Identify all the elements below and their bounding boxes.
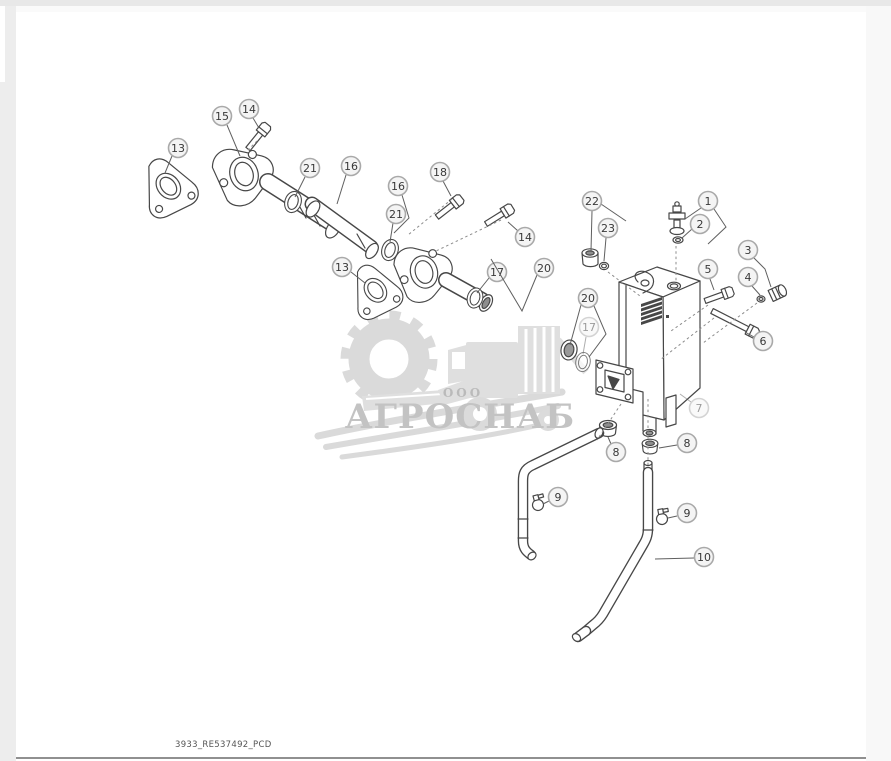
callout-number: 13 bbox=[335, 261, 349, 274]
callout-15[interactable]: 15 bbox=[213, 107, 241, 157]
callout-number: 9 bbox=[684, 507, 691, 520]
callout-number: 2 bbox=[697, 218, 704, 231]
callout-9[interactable]: 9 bbox=[668, 504, 697, 523]
callout-leader-line bbox=[604, 238, 606, 261]
callout-number: 3 bbox=[745, 244, 752, 257]
part-vent-fitting-1 bbox=[669, 202, 685, 235]
callout-leader-line bbox=[659, 445, 677, 448]
callout-16[interactable]: 16 bbox=[337, 157, 361, 205]
callout-number: 16 bbox=[391, 180, 405, 193]
part-bolt-18 bbox=[434, 193, 466, 221]
assembly-dashed-link-7 bbox=[408, 199, 452, 235]
callout-leader-line bbox=[708, 209, 726, 244]
callout-6[interactable]: 6 bbox=[745, 332, 773, 351]
callout-8[interactable]: 8 bbox=[659, 434, 697, 453]
callout-leader-line bbox=[752, 286, 760, 295]
callout-number: 14 bbox=[518, 231, 532, 244]
callout-leader-line bbox=[608, 437, 611, 444]
callout-number: 7 bbox=[696, 402, 703, 415]
part-plug-22 bbox=[582, 249, 598, 267]
part-clamp-9b bbox=[655, 508, 670, 526]
bottom-rule bbox=[16, 757, 866, 759]
drawing-id-caption: 3933_RE537492_PCD bbox=[175, 740, 272, 750]
watermark-logo: ООО АГРОСНАБ bbox=[318, 317, 586, 457]
part-bolt-6 bbox=[710, 306, 761, 339]
callout-21[interactable]: 21 bbox=[387, 205, 406, 243]
callout-number: 16 bbox=[344, 160, 358, 173]
callout-number: 20 bbox=[537, 262, 551, 275]
parts-layer bbox=[132, 121, 788, 643]
callout-14[interactable]: 14 bbox=[240, 100, 260, 129]
callout-number: 23 bbox=[601, 222, 615, 235]
exploded-parts-diagram: ООО АГРОСНАБ bbox=[0, 0, 891, 761]
callout-leader-line bbox=[253, 118, 259, 128]
callout-number: 22 bbox=[585, 195, 599, 208]
callout-leader-line bbox=[477, 278, 489, 293]
assembly-dashed-link-3 bbox=[703, 303, 757, 343]
callout-leader-line bbox=[591, 211, 592, 251]
callout-number: 13 bbox=[171, 142, 185, 155]
part-elbow-housing-15 bbox=[208, 137, 343, 240]
callout-number: 21 bbox=[303, 162, 317, 175]
part-clamp-9a bbox=[530, 493, 547, 511]
part-oring-17b bbox=[574, 351, 592, 372]
part-gasket-13a bbox=[132, 149, 203, 222]
callout-9[interactable]: 9 bbox=[543, 488, 568, 507]
callout-leader-line bbox=[508, 222, 518, 231]
callout-number: 1 bbox=[705, 195, 712, 208]
callout-5[interactable]: 5 bbox=[699, 260, 718, 291]
part-oring-4 bbox=[757, 296, 765, 302]
part-oring-23 bbox=[599, 262, 608, 269]
callout-number: 5 bbox=[705, 263, 712, 276]
part-hose-10 bbox=[571, 461, 653, 643]
callout-number: 10 bbox=[697, 551, 711, 564]
callout-8[interactable]: 8 bbox=[607, 437, 626, 462]
callout-number: 17 bbox=[582, 321, 596, 334]
callout-leader-line bbox=[543, 501, 549, 504]
watermark-company-name: АГРОСНАБ bbox=[345, 397, 575, 437]
part-washer-2 bbox=[673, 237, 683, 243]
callout-number: 20 bbox=[581, 292, 595, 305]
callout-23[interactable]: 23 bbox=[599, 219, 618, 262]
callout-leader-line bbox=[583, 337, 586, 354]
part-grommet-8b bbox=[642, 439, 658, 454]
gear-icon bbox=[347, 317, 431, 401]
callout-number: 9 bbox=[555, 491, 562, 504]
callout-number: 8 bbox=[684, 437, 691, 450]
callout-18[interactable]: 18 bbox=[431, 163, 452, 197]
callout-4[interactable]: 4 bbox=[739, 268, 761, 296]
part-bolt-5 bbox=[703, 286, 735, 306]
callout-leader-line bbox=[337, 175, 346, 204]
callout-number: 14 bbox=[242, 103, 256, 116]
callout-leader-line bbox=[668, 516, 677, 518]
callout-number: 8 bbox=[613, 446, 620, 459]
callout-10[interactable]: 10 bbox=[655, 548, 714, 567]
callout-number: 15 bbox=[215, 110, 229, 123]
callout-number: 18 bbox=[433, 166, 447, 179]
callout-leader-line bbox=[443, 181, 451, 196]
callout-14[interactable]: 14 bbox=[508, 222, 535, 247]
callout-leader-line bbox=[655, 558, 694, 559]
callout-7[interactable]: 7 bbox=[680, 394, 709, 418]
parts-catalog-page: ООО АГРОСНАБ bbox=[0, 0, 891, 761]
part-tube-16 bbox=[303, 198, 381, 260]
assembly-dashed-link-8 bbox=[436, 220, 501, 251]
callout-leader-line bbox=[710, 279, 714, 290]
callout-number: 6 bbox=[760, 335, 767, 348]
callout-number: 21 bbox=[389, 208, 403, 221]
callout-number: 4 bbox=[745, 271, 752, 284]
